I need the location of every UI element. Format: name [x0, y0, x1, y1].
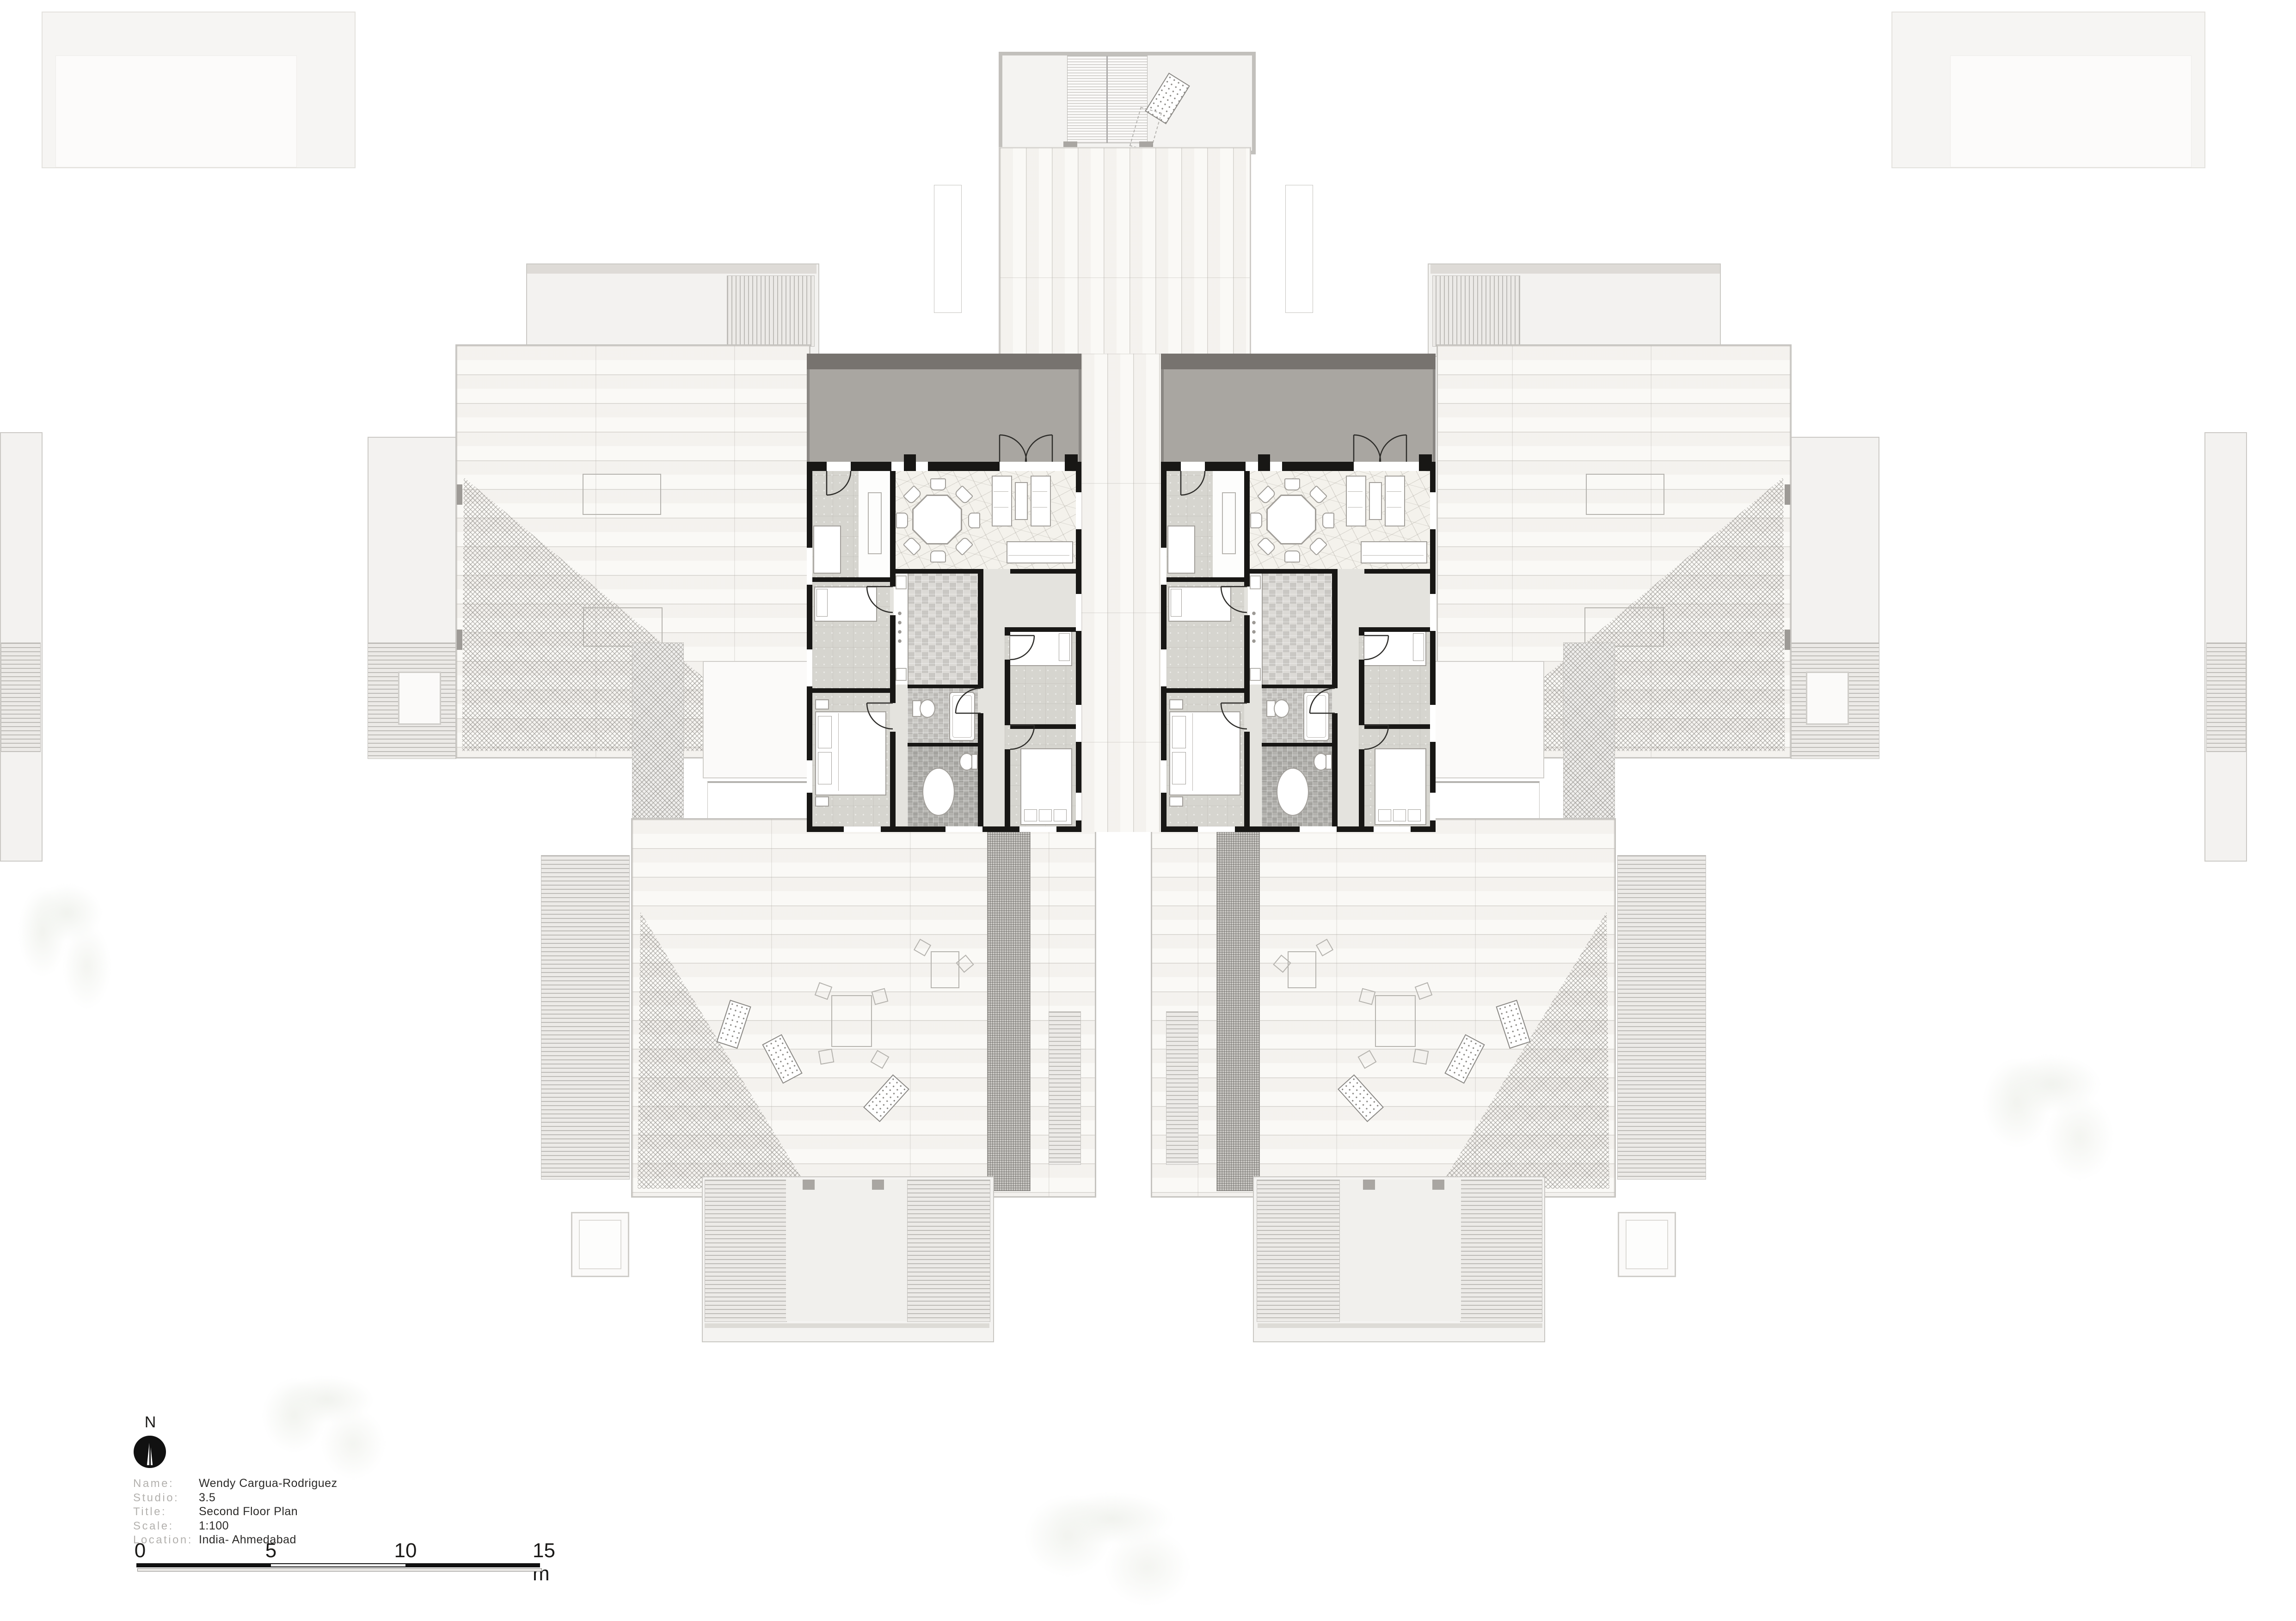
apartment-unit-left: [807, 354, 1081, 832]
sun-lounger: [1444, 1034, 1485, 1083]
outdoor-chair: [1358, 1050, 1377, 1069]
between-units-deck: [1081, 354, 1161, 832]
door-swing-arcs: [1161, 354, 1436, 832]
louver-walk: [1617, 855, 1706, 1180]
scale-tick-label: 5: [265, 1539, 276, 1562]
frame-inner: [1626, 1220, 1668, 1269]
lower-deck: [1253, 1176, 1545, 1342]
column-tab: [1432, 1180, 1444, 1190]
tree-foliage: [250, 1364, 398, 1493]
title-field: Title:Second Floor Plan: [133, 1505, 338, 1520]
outdoor-table: [1375, 995, 1416, 1047]
scale-bar-segments: [136, 1563, 540, 1567]
apartment-unit-right: [1161, 354, 1436, 832]
scale-bar: 0 5 10 15 m: [136, 1539, 576, 1576]
sun-lounger: [1496, 1000, 1530, 1049]
tower-deck: [999, 147, 1251, 358]
north-arrow-icon: [134, 1436, 166, 1468]
north-label: N: [139, 1413, 161, 1431]
outdoor-chair: [1316, 939, 1333, 956]
door-swing-arcs: [807, 354, 1081, 832]
skylight-outline: [1584, 607, 1664, 647]
field-label: Studio:: [133, 1492, 199, 1505]
deck-louver: [1257, 1180, 1340, 1322]
column-tab: [1363, 1180, 1375, 1190]
context-side-block: [1790, 437, 1879, 644]
outdoor-chair: [1415, 982, 1432, 1000]
sun-lounger: [1338, 1074, 1384, 1122]
context-roof-inner: [1950, 55, 2192, 167]
scale-segment: [271, 1563, 405, 1567]
skylight-outline: [1586, 474, 1664, 515]
scale-tick-label: 0: [135, 1539, 146, 1562]
tree-foliage: [1970, 1040, 2127, 1197]
title-field: Studio:3.5: [133, 1492, 338, 1506]
scale-bar-base: [137, 1568, 542, 1572]
context-upper-terrace: [1428, 263, 1721, 357]
scale-tick-label: 15 m: [533, 1539, 561, 1585]
planter-bench: [1166, 1011, 1198, 1165]
pergola-rail: [1106, 56, 1108, 143]
deck-edge: [1258, 1323, 1542, 1328]
tree-foliage: [9, 869, 120, 1026]
louver-screen: [1432, 275, 1520, 347]
scale-tick-label: 10: [394, 1539, 417, 1562]
outdoor-chair: [1359, 988, 1376, 1005]
edge-louver: [2206, 642, 2246, 752]
field-value: Wendy Cargua-Rodriguez: [199, 1477, 338, 1490]
field-label: Title:: [133, 1506, 199, 1518]
terrace-edge-band: [1430, 264, 1720, 274]
outdoor-chair: [1413, 1049, 1429, 1065]
tree-foliage: [1008, 1479, 1207, 1621]
small-roof-frame: [1806, 672, 1849, 725]
tower-stair: [1285, 185, 1313, 313]
scale-segment: [405, 1563, 540, 1567]
outdoor-table: [1288, 951, 1316, 988]
small-roof-frame: [1618, 1212, 1676, 1277]
title-block: Name:Wendy Cargua-Rodriguez Studio:3.5 T…: [133, 1477, 338, 1548]
floor-plan-sheet: N Name:Wendy Cargua-Rodriguez Studio:3.5…: [0, 0, 2296, 1621]
title-field: Scale:1:100: [133, 1520, 338, 1534]
wall-stub: [1785, 484, 1790, 505]
deck-panel: [1340, 1180, 1461, 1321]
scale-segment: [136, 1563, 271, 1567]
field-value: Second Floor Plan: [199, 1505, 298, 1518]
north-indicator: N: [134, 1413, 189, 1474]
wall-stub: [1785, 630, 1790, 650]
field-value: 3.5: [199, 1491, 215, 1504]
field-label: Scale:: [133, 1520, 199, 1533]
title-field: Name:Wendy Cargua-Rodriguez: [133, 1477, 338, 1492]
deck-louver: [1460, 1180, 1542, 1322]
stair-void: [1427, 661, 1544, 778]
field-value: 1:100: [199, 1519, 229, 1532]
screen-bridge: [1216, 820, 1260, 1191]
roof-pergola: [999, 52, 1256, 154]
field-label: Name:: [133, 1478, 199, 1490]
